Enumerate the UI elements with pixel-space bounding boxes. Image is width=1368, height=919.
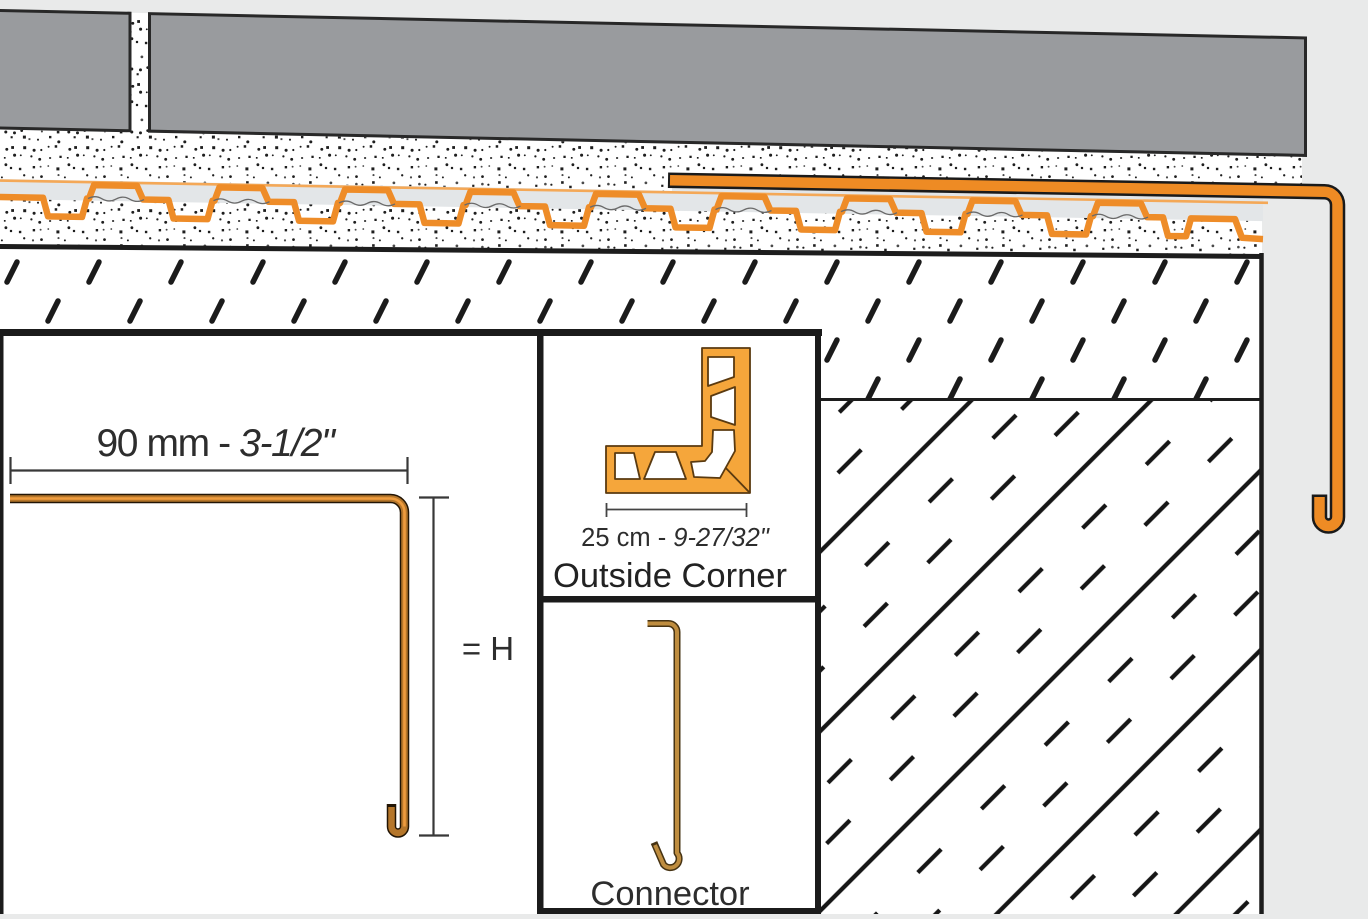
svg-text:= H: = H	[462, 630, 514, 667]
svg-text:90 mm - 3-1/2": 90 mm - 3-1/2"	[97, 422, 338, 465]
svg-text:Connector: Connector	[590, 875, 749, 913]
svg-text:Outside Corner: Outside Corner	[553, 557, 787, 595]
svg-text:25 cm - 9-27/32": 25 cm - 9-27/32"	[581, 524, 770, 552]
